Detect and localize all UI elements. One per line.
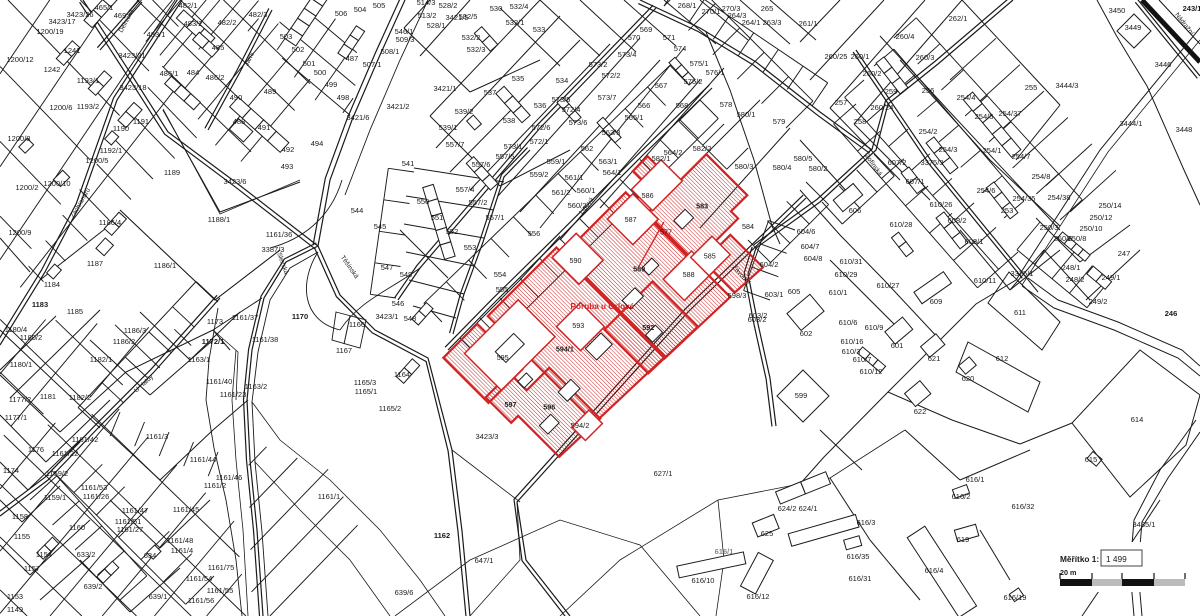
svg-text:1190: 1190: [113, 124, 129, 133]
svg-text:616/31: 616/31: [849, 574, 872, 583]
svg-text:3421/6: 3421/6: [347, 113, 370, 122]
svg-text:1155: 1155: [14, 532, 30, 541]
svg-text:1189: 1189: [164, 168, 180, 177]
svg-text:3375/1: 3375/1: [1011, 269, 1034, 278]
svg-text:610/12: 610/12: [860, 367, 883, 376]
svg-text:254/5: 254/5: [975, 112, 994, 121]
svg-text:572/2: 572/2: [602, 71, 621, 80]
svg-text:555: 555: [496, 285, 509, 294]
svg-text:1200/6: 1200/6: [50, 103, 73, 112]
svg-text:1180/2: 1180/2: [20, 333, 42, 342]
svg-text:3375/3: 3375/3: [921, 158, 944, 167]
svg-text:483/2: 483/2: [184, 19, 203, 28]
svg-text:1186/1: 1186/1: [154, 261, 176, 270]
svg-text:260/24: 260/24: [871, 103, 894, 112]
svg-text:538: 538: [503, 116, 516, 125]
svg-text:595: 595: [497, 353, 509, 362]
svg-text:1161/26: 1161/26: [83, 492, 110, 501]
svg-text:3423/26: 3423/26: [66, 10, 93, 19]
svg-text:530: 530: [490, 4, 503, 13]
svg-text:533: 533: [533, 25, 546, 34]
svg-text:593: 593: [572, 321, 584, 330]
svg-text:572/6: 572/6: [532, 123, 551, 132]
svg-text:590: 590: [570, 256, 582, 265]
svg-text:486/2: 486/2: [206, 73, 225, 82]
svg-text:607/1: 607/1: [906, 177, 925, 186]
svg-text:262/1: 262/1: [949, 14, 968, 23]
svg-text:1173: 1173: [207, 317, 223, 326]
svg-text:620: 620: [962, 374, 975, 383]
svg-text:549: 549: [400, 270, 413, 279]
svg-text:1186/3: 1186/3: [124, 326, 146, 335]
svg-text:509/3: 509/3: [396, 35, 415, 44]
svg-text:482/1: 482/1: [179, 1, 198, 10]
svg-text:639/6: 639/6: [395, 588, 414, 597]
svg-text:250/12: 250/12: [1090, 213, 1113, 222]
svg-text:557/5: 557/5: [496, 152, 515, 161]
svg-text:Poruba u Orlové: Poruba u Orlové: [571, 302, 635, 311]
svg-text:562: 562: [581, 144, 594, 153]
svg-text:614: 614: [1131, 415, 1144, 424]
svg-text:596: 596: [543, 402, 555, 411]
svg-text:532/3: 532/3: [467, 45, 486, 54]
svg-text:3421/2: 3421/2: [387, 102, 410, 111]
svg-text:571: 571: [663, 33, 676, 42]
svg-text:504: 504: [354, 5, 367, 14]
svg-text:565/1: 565/1: [625, 113, 644, 122]
svg-text:528/1: 528/1: [427, 21, 446, 30]
svg-text:1182/2: 1182/2: [69, 393, 91, 402]
svg-text:580/1: 580/1: [737, 110, 756, 119]
svg-text:465/1: 465/1: [95, 3, 114, 12]
svg-text:250/10: 250/10: [1080, 224, 1103, 233]
svg-text:507/1: 507/1: [363, 60, 382, 69]
svg-text:541: 541: [402, 159, 415, 168]
svg-text:488: 488: [233, 117, 246, 126]
svg-text:604/2: 604/2: [760, 260, 779, 269]
svg-text:551: 551: [431, 213, 444, 222]
svg-text:1193/1: 1193/1: [77, 76, 99, 85]
svg-text:539/2: 539/2: [455, 107, 474, 116]
svg-text:492: 492: [282, 145, 295, 154]
svg-text:557/4: 557/4: [456, 185, 475, 194]
svg-text:552: 552: [446, 227, 459, 236]
svg-text:263/3: 263/3: [763, 18, 782, 27]
svg-text:608/1: 608/1: [965, 237, 984, 246]
svg-text:1186/2: 1186/2: [113, 337, 135, 346]
svg-text:589: 589: [633, 264, 645, 273]
svg-text:1188/1: 1188/1: [208, 215, 230, 224]
svg-text:624/1: 624/1: [799, 504, 818, 513]
svg-text:1161/45: 1161/45: [173, 505, 200, 514]
svg-text:485: 485: [212, 43, 225, 52]
svg-text:1177/2: 1177/2: [9, 395, 31, 404]
svg-text:1161/54: 1161/54: [186, 574, 213, 583]
svg-text:1172/1: 1172/1: [202, 337, 225, 346]
svg-text:557/7: 557/7: [446, 140, 465, 149]
svg-text:3421/1: 3421/1: [434, 84, 457, 93]
svg-text:483/1: 483/1: [147, 30, 166, 39]
svg-text:1200/2: 1200/2: [16, 183, 39, 192]
svg-text:1200/9: 1200/9: [9, 228, 32, 237]
svg-text:506: 506: [335, 9, 348, 18]
svg-text:3448: 3448: [1176, 125, 1193, 134]
svg-text:625: 625: [761, 529, 774, 538]
svg-text:610/1: 610/1: [829, 288, 848, 297]
svg-text:1200/19: 1200/19: [36, 27, 63, 36]
svg-text:610/28: 610/28: [890, 220, 913, 229]
svg-text:1180/1: 1180/1: [10, 360, 32, 369]
svg-text:1161/53: 1161/53: [81, 483, 108, 492]
svg-text:1241: 1241: [64, 46, 81, 55]
svg-text:1161/3: 1161/3: [146, 432, 168, 441]
svg-text:553: 553: [464, 243, 477, 252]
svg-text:567: 567: [655, 81, 668, 90]
svg-text:1157: 1157: [24, 564, 40, 573]
svg-text:250/8: 250/8: [1068, 234, 1087, 243]
svg-text:3423/1: 3423/1: [376, 312, 399, 321]
svg-text:616/12: 616/12: [747, 592, 770, 601]
svg-text:513/2: 513/2: [418, 11, 437, 20]
svg-text:1161/27: 1161/27: [117, 525, 144, 534]
svg-text:1161/36: 1161/36: [266, 230, 293, 239]
svg-text:1182/1: 1182/1: [90, 355, 112, 364]
svg-text:580/5: 580/5: [794, 154, 813, 163]
svg-text:1161/22: 1161/22: [52, 449, 79, 458]
svg-text:594/2: 594/2: [571, 421, 590, 430]
svg-text:255: 255: [1025, 83, 1038, 92]
svg-text:586: 586: [642, 191, 654, 200]
svg-text:1158: 1158: [12, 512, 28, 521]
svg-text:561/2: 561/2: [552, 188, 571, 197]
svg-text:532/5: 532/5: [459, 12, 478, 21]
svg-text:564/1: 564/1: [603, 168, 622, 177]
svg-text:587: 587: [625, 215, 637, 224]
svg-text:621: 621: [928, 354, 941, 363]
svg-text:616/2: 616/2: [952, 492, 971, 501]
svg-text:491: 491: [258, 123, 271, 132]
svg-text:500: 500: [314, 68, 327, 77]
svg-text:570: 570: [628, 33, 641, 42]
svg-text:254/37: 254/37: [999, 109, 1022, 118]
svg-text:260/3: 260/3: [916, 53, 935, 62]
svg-text:1161/4: 1161/4: [171, 546, 193, 555]
svg-text:534: 534: [556, 76, 569, 85]
svg-text:254/2: 254/2: [919, 127, 938, 136]
svg-text:577: 577: [660, 228, 672, 237]
svg-text:260/2: 260/2: [863, 69, 882, 78]
svg-text:608/2: 608/2: [948, 216, 967, 225]
svg-text:616/4: 616/4: [925, 566, 944, 575]
svg-text:547: 547: [381, 263, 394, 272]
svg-text:1165/1: 1165/1: [355, 387, 377, 396]
svg-text:616/32: 616/32: [1012, 502, 1035, 511]
svg-text:598/3: 598/3: [728, 291, 747, 300]
svg-text:246: 246: [1165, 309, 1178, 318]
svg-text:259: 259: [885, 87, 898, 96]
svg-text:554: 554: [494, 270, 507, 279]
svg-text:498: 498: [337, 93, 350, 102]
svg-text:1200/5: 1200/5: [86, 156, 109, 165]
svg-text:572/4: 572/4: [562, 105, 581, 114]
svg-text:537: 537: [484, 88, 497, 97]
svg-text:508/1: 508/1: [381, 47, 400, 56]
svg-text:482/2: 482/2: [218, 18, 237, 27]
svg-text:579: 579: [773, 117, 786, 126]
svg-text:1154: 1154: [36, 550, 52, 559]
svg-text:270/1: 270/1: [702, 7, 721, 16]
svg-text:514/3: 514/3: [417, 0, 436, 7]
svg-text:1161/23: 1161/23: [220, 390, 247, 399]
svg-text:1186/4: 1186/4: [99, 218, 121, 227]
svg-text:1163/2: 1163/2: [245, 382, 267, 391]
svg-text:1191: 1191: [133, 117, 149, 126]
svg-text:1242: 1242: [44, 65, 61, 74]
svg-text:544: 544: [351, 206, 364, 215]
svg-text:603/1: 603/1: [765, 290, 784, 299]
svg-text:1161/44: 1161/44: [190, 455, 217, 464]
svg-text:484: 484: [187, 68, 200, 77]
svg-text:582/1: 582/1: [652, 154, 671, 163]
svg-text:532/1: 532/1: [506, 18, 525, 27]
svg-text:1160: 1160: [69, 523, 85, 532]
svg-text:616/3: 616/3: [857, 518, 876, 527]
svg-text:260/1: 260/1: [851, 52, 870, 61]
svg-text:502: 502: [292, 45, 305, 54]
svg-text:560/1: 560/1: [577, 186, 596, 195]
svg-text:550: 550: [417, 197, 430, 206]
svg-text:603/2: 603/2: [748, 315, 767, 324]
svg-text:573/4: 573/4: [618, 50, 637, 59]
svg-text:1164: 1164: [394, 370, 410, 379]
svg-text:254/38: 254/38: [1048, 193, 1071, 202]
svg-text:622: 622: [914, 407, 927, 416]
svg-text:575/2: 575/2: [684, 77, 703, 86]
svg-text:594/1: 594/1: [556, 344, 574, 353]
svg-text:610/9: 610/9: [865, 323, 884, 332]
svg-text:1192/1: 1192/1: [100, 146, 122, 155]
svg-text:1165/2: 1165/2: [379, 404, 401, 413]
svg-text:592: 592: [642, 323, 654, 332]
svg-text:548: 548: [404, 314, 417, 323]
svg-text:599: 599: [795, 391, 808, 400]
svg-text:1 499: 1 499: [1106, 554, 1127, 564]
svg-text:610/16: 610/16: [841, 337, 864, 346]
svg-text:3435/1: 3435/1: [1133, 520, 1156, 529]
svg-text:536: 536: [534, 101, 547, 110]
svg-text:616/35: 616/35: [847, 552, 870, 561]
svg-text:250/14: 250/14: [1099, 201, 1122, 210]
svg-text:573/6: 573/6: [569, 118, 588, 127]
svg-text:610/7: 610/7: [853, 355, 872, 364]
svg-text:1200/12: 1200/12: [6, 55, 33, 64]
svg-text:639/1: 639/1: [149, 592, 168, 601]
svg-text:490: 490: [230, 93, 243, 102]
svg-text:258: 258: [854, 117, 867, 126]
svg-text:545: 545: [374, 222, 387, 231]
svg-text:254/35: 254/35: [1013, 194, 1036, 203]
svg-text:556: 556: [528, 229, 541, 238]
svg-text:1200/8: 1200/8: [8, 134, 31, 143]
svg-text:557/1: 557/1: [486, 213, 505, 222]
svg-text:616/10: 616/10: [692, 576, 715, 585]
svg-text:20 m: 20 m: [1060, 568, 1076, 577]
svg-text:1183: 1183: [32, 300, 48, 309]
svg-text:486/1: 486/1: [160, 69, 179, 78]
svg-text:639/2: 639/2: [84, 582, 103, 591]
svg-text:254/4: 254/4: [957, 93, 976, 102]
svg-text:265: 265: [761, 4, 774, 13]
svg-text:576/1: 576/1: [706, 68, 725, 77]
svg-text:582/2: 582/2: [693, 144, 712, 153]
svg-text:1184: 1184: [44, 280, 60, 289]
svg-text:1181: 1181: [40, 392, 56, 401]
svg-text:647/1: 647/1: [475, 556, 494, 565]
svg-text:3450: 3450: [1109, 6, 1126, 15]
svg-text:1166: 1166: [349, 320, 365, 329]
svg-text:1149: 1149: [7, 605, 23, 614]
svg-text:260/25: 260/25: [825, 52, 848, 61]
svg-text:588: 588: [683, 270, 695, 279]
svg-text:1161/56: 1161/56: [188, 596, 215, 605]
svg-text:1161/38: 1161/38: [252, 335, 279, 344]
svg-text:546: 546: [392, 299, 405, 308]
svg-text:539/1: 539/1: [439, 123, 458, 132]
svg-text:3423/18: 3423/18: [119, 83, 146, 92]
svg-text:604/6: 604/6: [797, 227, 816, 236]
svg-text:615: 615: [1085, 455, 1098, 464]
svg-text:573/7: 573/7: [598, 93, 617, 102]
svg-text:563/3: 563/3: [602, 128, 621, 137]
svg-text:604/8: 604/8: [804, 254, 823, 263]
svg-text:254/3: 254/3: [939, 145, 958, 154]
svg-text:1161/55: 1161/55: [207, 586, 234, 595]
svg-text:573/1: 573/1: [504, 142, 523, 151]
svg-text:580/3: 580/3: [735, 162, 754, 171]
svg-text:585: 585: [704, 252, 716, 261]
svg-text:535: 535: [512, 74, 525, 83]
svg-text:584: 584: [742, 222, 754, 231]
svg-text:243/1: 243/1: [1183, 4, 1200, 13]
svg-text:606: 606: [849, 206, 862, 215]
svg-text:605: 605: [788, 287, 801, 296]
svg-text:1177/1: 1177/1: [5, 413, 27, 422]
svg-text:1163/1: 1163/1: [188, 355, 210, 364]
svg-text:254/6: 254/6: [977, 186, 996, 195]
svg-text:572/1: 572/1: [530, 137, 549, 146]
svg-text:1176: 1176: [28, 445, 44, 454]
svg-text:578: 578: [720, 100, 733, 109]
svg-text:505: 505: [373, 1, 386, 10]
svg-text:487: 487: [346, 54, 359, 63]
svg-text:602: 602: [800, 329, 813, 338]
svg-text:1187: 1187: [87, 259, 103, 268]
svg-text:1161/40: 1161/40: [206, 377, 233, 386]
svg-text:532/4: 532/4: [510, 2, 529, 11]
svg-text:493: 493: [281, 162, 294, 171]
svg-text:1200/10: 1200/10: [43, 179, 70, 188]
svg-text:261/1: 261/1: [799, 19, 818, 28]
svg-text:616/1: 616/1: [966, 475, 985, 484]
svg-text:607/2: 607/2: [888, 158, 907, 167]
svg-text:580/2: 580/2: [809, 164, 828, 173]
svg-text:546/1: 546/1: [395, 27, 414, 36]
svg-text:528/2: 528/2: [439, 1, 458, 10]
svg-text:3444/3: 3444/3: [1056, 81, 1079, 90]
svg-text:557/6: 557/6: [472, 160, 491, 169]
svg-text:1161/75: 1161/75: [208, 563, 235, 572]
svg-text:1185: 1185: [67, 307, 83, 316]
svg-text:256: 256: [922, 86, 935, 95]
svg-text:1161/47: 1161/47: [122, 506, 149, 515]
svg-text:597: 597: [505, 400, 517, 409]
svg-text:563/1: 563/1: [599, 157, 618, 166]
svg-text:611: 611: [1014, 308, 1026, 317]
svg-text:610/26: 610/26: [930, 200, 953, 209]
svg-text:247: 247: [1118, 249, 1131, 258]
svg-text:559/1: 559/1: [547, 157, 566, 166]
svg-text:624/2: 624/2: [778, 504, 797, 513]
svg-text:3423/3: 3423/3: [476, 432, 499, 441]
svg-text:254/7: 254/7: [1012, 152, 1031, 161]
svg-text:1162: 1162: [434, 531, 450, 540]
svg-text:1159/1: 1159/1: [44, 493, 66, 502]
svg-text:3444/1: 3444/1: [1120, 119, 1143, 128]
svg-text:1161/1: 1161/1: [318, 492, 340, 501]
svg-text:248/2: 248/2: [1066, 275, 1085, 284]
svg-text:604/7: 604/7: [801, 242, 820, 251]
svg-text:561/1: 561/1: [565, 173, 584, 182]
svg-text:499: 499: [325, 80, 338, 89]
svg-text:616/1: 616/1: [715, 547, 734, 556]
svg-text:1161/48: 1161/48: [167, 536, 194, 545]
svg-text:569: 569: [640, 25, 653, 34]
svg-text:268/1: 268/1: [678, 1, 697, 10]
svg-text:3423/6: 3423/6: [224, 177, 247, 186]
svg-text:559/2: 559/2: [530, 170, 549, 179]
svg-text:253: 253: [1001, 206, 1014, 215]
svg-text:609: 609: [930, 297, 943, 306]
svg-text:489: 489: [264, 87, 277, 96]
svg-text:573/5: 573/5: [552, 95, 571, 104]
svg-text:1193/2: 1193/2: [77, 102, 99, 111]
svg-text:610/31: 610/31: [840, 257, 863, 266]
svg-text:1153: 1153: [7, 592, 23, 601]
svg-text:601: 601: [891, 341, 904, 350]
svg-text:1170: 1170: [292, 312, 308, 321]
svg-text:573/2: 573/2: [589, 60, 608, 69]
svg-text:1165/3: 1165/3: [354, 378, 376, 387]
svg-text:634: 634: [144, 551, 157, 560]
svg-text:1167: 1167: [336, 346, 352, 355]
svg-text:616/19: 616/19: [1004, 593, 1027, 602]
svg-text:532/2: 532/2: [462, 33, 481, 42]
svg-text:1161/2: 1161/2: [204, 481, 226, 490]
svg-text:557/2: 557/2: [469, 198, 488, 207]
svg-text:627/1: 627/1: [654, 469, 673, 478]
svg-text:Měřítko 1:: Měřítko 1:: [1060, 554, 1099, 564]
svg-text:610/6: 610/6: [839, 318, 858, 327]
svg-text:260/4: 260/4: [896, 32, 915, 41]
svg-text:610/27: 610/27: [877, 281, 900, 290]
svg-text:568: 568: [676, 101, 689, 110]
svg-text:257: 257: [835, 98, 848, 107]
svg-text:249/1: 249/1: [1102, 273, 1121, 282]
svg-text:1161/37: 1161/37: [232, 313, 259, 322]
svg-text:1161/42: 1161/42: [72, 435, 99, 444]
svg-text:254/1: 254/1: [983, 146, 1002, 155]
svg-text:501: 501: [303, 59, 316, 68]
